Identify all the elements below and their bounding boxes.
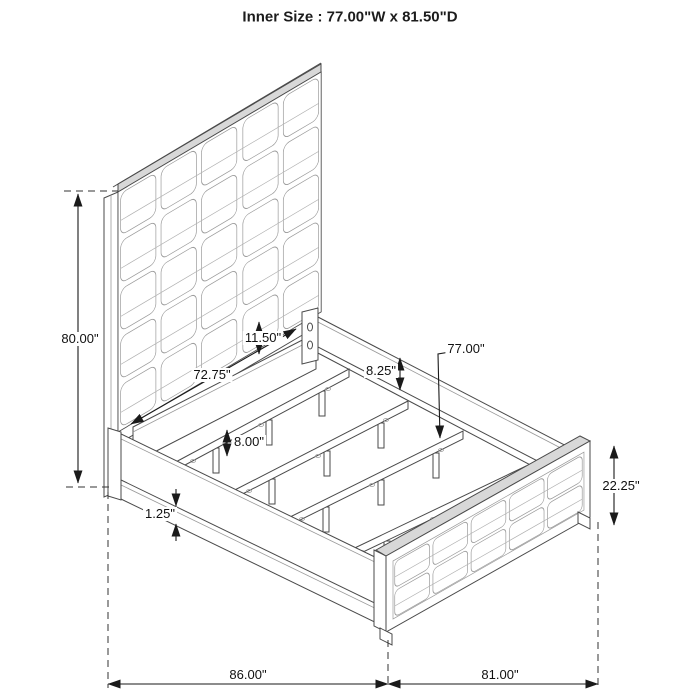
- slat-leg: [266, 420, 272, 445]
- dim-leg-height: 8.00": [232, 435, 266, 449]
- dim-inner-width: 77.00": [445, 342, 486, 356]
- slat-leg: [433, 453, 439, 478]
- slat-leg: [378, 480, 384, 505]
- dim-rail-trim: 1.25": [143, 507, 177, 521]
- dim-overall-depth: 86.00": [227, 668, 268, 682]
- rail-end-cap: [108, 428, 121, 500]
- side-rail-left: [108, 428, 385, 627]
- footboard-left-stile: [374, 550, 386, 632]
- slat-leg: [324, 451, 330, 476]
- dim-overall-width: 81.00": [479, 668, 520, 682]
- bed-dimension-diagram: Inner Size : 77.00"W x 81.50"D 80.00" 11…: [0, 0, 700, 700]
- page-title: Inner Size : 77.00"W x 81.50"D: [242, 9, 457, 26]
- dim-footboard-height: 22.25": [600, 479, 641, 493]
- slat-leg: [213, 448, 219, 473]
- dim-siderail-height: 8.25": [364, 364, 398, 378]
- dim-headboard-height: 80.00": [59, 332, 100, 346]
- slat-leg: [378, 423, 384, 448]
- slat-leg: [269, 479, 275, 504]
- footboard-foot: [380, 628, 392, 645]
- bed-frame-drawing: [0, 0, 700, 700]
- rail-bracket: [302, 308, 318, 364]
- slat-leg: [319, 391, 325, 416]
- slat-leg: [323, 507, 329, 532]
- dim-slat-rail-length: 72.75": [191, 368, 232, 382]
- dim-headboard-rail-width: 11.50": [243, 331, 283, 345]
